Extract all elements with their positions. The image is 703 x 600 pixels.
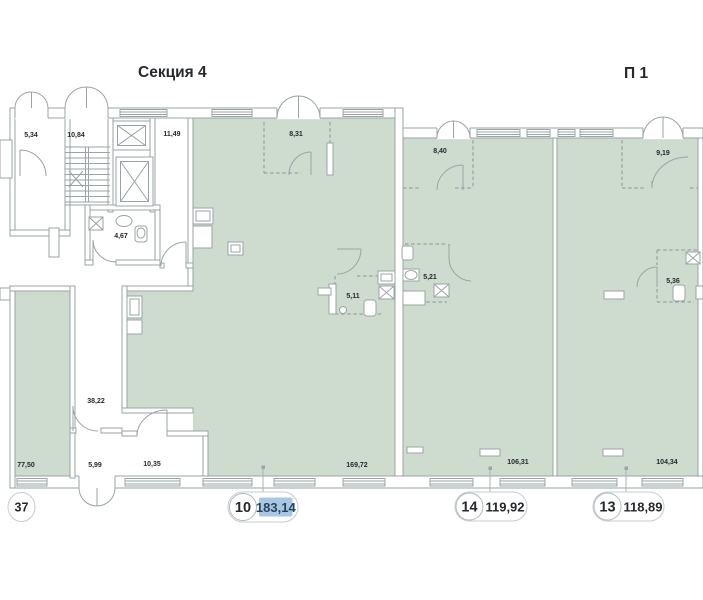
unit-badge-partial-37[interactable]: 37 [8,493,35,522]
block-title: П 1 [624,65,648,82]
window [125,479,180,487]
door-arc [93,240,116,262]
door-arc [20,150,46,176]
elevator-shaft [113,121,150,150]
entrance-door [15,92,48,119]
window [477,130,520,137]
window [120,110,167,117]
room-area-label: 10,84 [67,132,85,139]
window [17,479,47,487]
room-area-label: 11,49 [163,131,180,138]
unit-number: 13 [599,500,615,516]
elevator-shafts [113,121,153,206]
window [558,130,575,137]
room-area-label: 8,40 [433,148,447,155]
room-area-label: 5,11 [346,293,359,300]
staircase [65,147,110,205]
window [527,130,550,137]
entrance-door [643,117,683,139]
room-area-label: 169,72 [346,462,368,469]
unit-14-area [403,138,553,476]
floor-plan: Секция 4 П 1 [0,0,703,600]
room-area-label: 5,34 [24,132,38,139]
unit-13-area [557,138,698,476]
entrance-door [65,87,108,119]
door-arc [73,406,98,431]
window [203,479,252,487]
room-area-label: 5,21 [423,274,437,281]
window [274,479,315,487]
unit-number: 10 [235,500,251,516]
room-area-label: 106,31 [507,459,529,466]
room-area-label: 9,19 [656,150,670,157]
entrance-door [437,121,470,139]
entrance-door [79,475,115,506]
room-area-label: 4,67 [114,233,128,240]
window [580,130,613,137]
unit-area: 183,14 [256,500,297,515]
stair-direction-mark [69,171,83,187]
window [430,479,473,487]
section-title: Секция 4 [138,64,207,81]
window [343,479,385,487]
window [343,110,383,117]
room-area-label: 10,35 [143,461,161,468]
room-area-label: 104,34 [656,459,678,466]
floor-plan-canvas: Секция 4 П 1 [0,0,703,600]
room-77-area [13,291,70,476]
unit-area: 119,92 [485,500,524,515]
unit-number: 14 [461,500,477,516]
elevator-shaft [116,157,153,206]
door-arc [137,410,167,436]
room-area-label: 5,99 [88,462,102,469]
window [212,110,252,117]
unit-number: 37 [15,501,29,515]
room-area-label: 38,22 [87,398,105,405]
window [500,479,545,487]
room-area-label: 5,36 [666,278,680,285]
unit-area: 118,89 [623,500,662,515]
room-area-label: 8,31 [289,131,303,138]
door-arc [161,242,186,266]
entrance-door [277,96,320,119]
room-area-label: 77,50 [17,462,35,469]
window [642,479,683,487]
window [572,479,617,487]
